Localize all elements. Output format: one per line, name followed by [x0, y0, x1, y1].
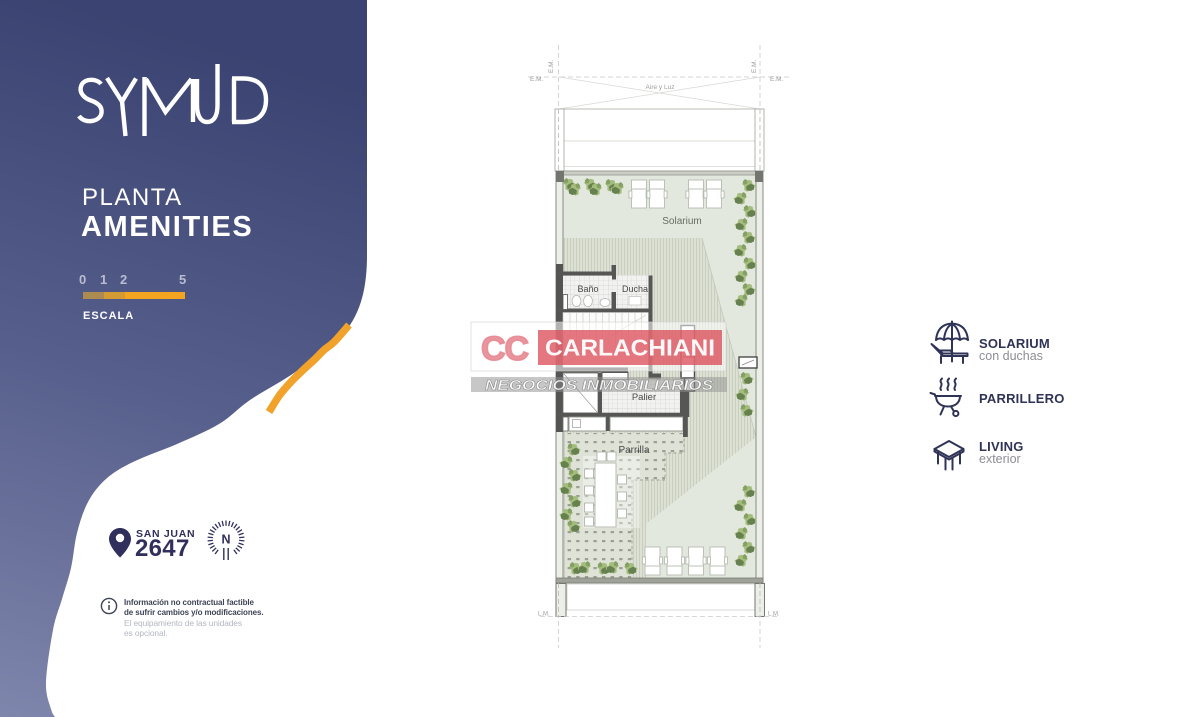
svg-text:Ducha: Ducha: [622, 284, 648, 294]
svg-text:CARLACHIANI: CARLACHIANI: [545, 335, 715, 361]
svg-text:N: N: [221, 533, 230, 547]
svg-text:E.M.: E.M.: [770, 76, 784, 83]
svg-text:Solarium: Solarium: [662, 216, 701, 227]
svg-text:E.M.: E.M.: [751, 59, 758, 73]
svg-text:Parrilla: Parrilla: [618, 445, 650, 456]
svg-text:E.M.: E.M.: [530, 76, 544, 83]
svg-text:Baño: Baño: [577, 284, 598, 294]
svg-text:L.M.: L.M.: [768, 612, 780, 618]
svg-text:E.M.: E.M.: [548, 59, 555, 73]
svg-text:NEGOCIOS INMOBILIARIOS: NEGOCIOS INMOBILIARIOS: [485, 378, 713, 394]
svg-text:L.M.: L.M.: [538, 612, 550, 618]
svg-text:CC: CC: [481, 330, 529, 368]
svg-text:Aire y Luz: Aire y Luz: [646, 84, 675, 91]
